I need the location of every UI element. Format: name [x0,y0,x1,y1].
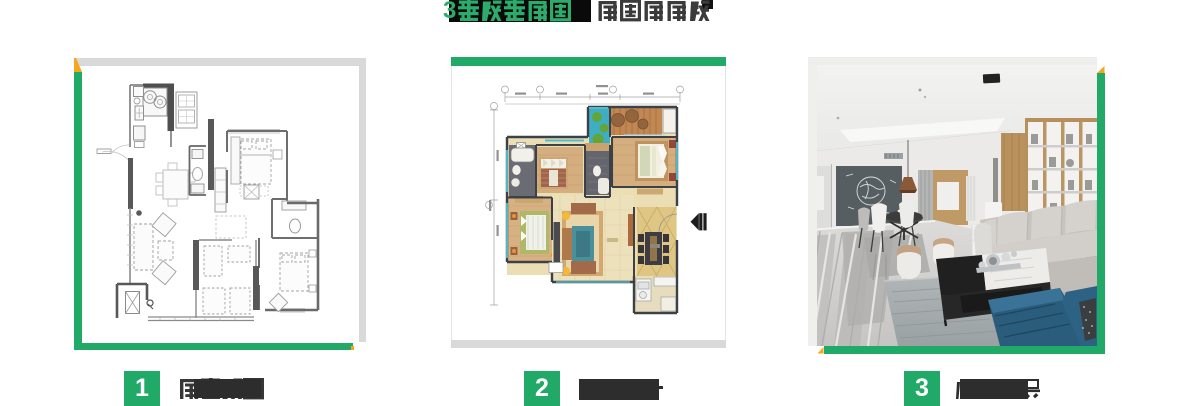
svg-text:3: 3 [443,0,456,23]
